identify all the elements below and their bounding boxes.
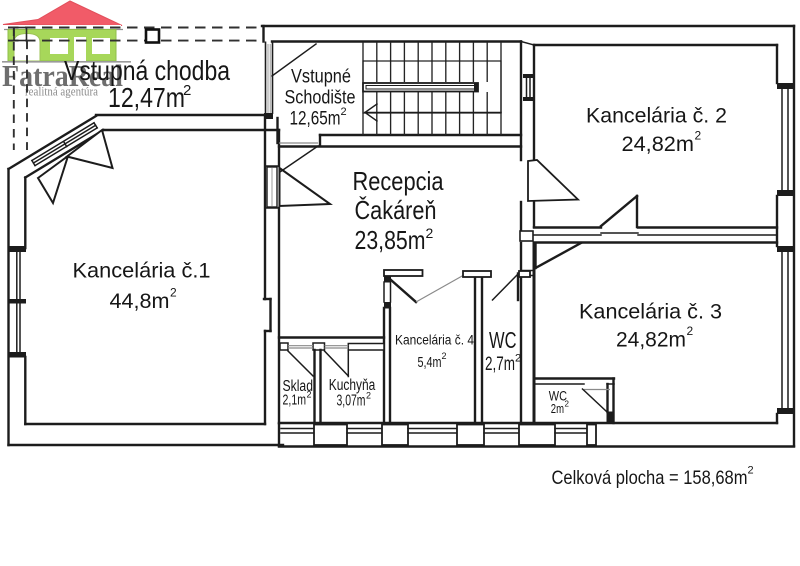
svg-text:Recepcia: Recepcia [353, 166, 444, 196]
svg-text:2: 2 [426, 225, 434, 241]
svg-text:Kancelária č. 3: Kancelária č. 3 [579, 300, 722, 324]
svg-text:2m: 2m [551, 402, 564, 416]
svg-text:24,82m: 24,82m [616, 328, 686, 352]
svg-text:44,8m: 44,8m [110, 289, 170, 313]
svg-text:Kancelária č. 4: Kancelária č. 4 [395, 333, 474, 348]
svg-text:2: 2 [170, 286, 177, 300]
svg-text:24,82m: 24,82m [622, 132, 695, 156]
svg-text:2: 2 [687, 324, 694, 338]
svg-text:12,47m: 12,47m [108, 82, 185, 113]
svg-text:2: 2 [307, 390, 312, 400]
svg-text:realitná agentúra: realitná agentúra [25, 85, 98, 99]
svg-text:Kancelária č. 2: Kancelária č. 2 [586, 104, 727, 128]
svg-text:2: 2 [183, 82, 191, 99]
svg-text:Celková plocha = 158,68m: Celková plocha = 158,68m [552, 467, 748, 489]
svg-text:2,7m: 2,7m [485, 353, 515, 375]
svg-text:2,1m: 2,1m [283, 392, 307, 409]
svg-text:2: 2 [442, 351, 447, 361]
svg-text:12,65m: 12,65m [290, 109, 341, 130]
svg-text:2: 2 [748, 465, 754, 477]
svg-text:5,4m: 5,4m [418, 354, 442, 371]
svg-text:23,85m: 23,85m [355, 225, 426, 255]
svg-text:2: 2 [341, 106, 347, 118]
svg-text:Čakáreň: Čakáreň [355, 195, 437, 225]
svg-text:Vstupné: Vstupné [291, 67, 351, 88]
svg-text:2: 2 [515, 353, 521, 365]
svg-text:3,07m: 3,07m [337, 393, 366, 410]
svg-text:2: 2 [366, 391, 371, 401]
svg-text:2: 2 [695, 129, 702, 143]
svg-text:WC: WC [489, 327, 517, 353]
svg-text:Kancelária č.1: Kancelária č.1 [73, 259, 211, 283]
svg-text:2: 2 [565, 400, 570, 409]
